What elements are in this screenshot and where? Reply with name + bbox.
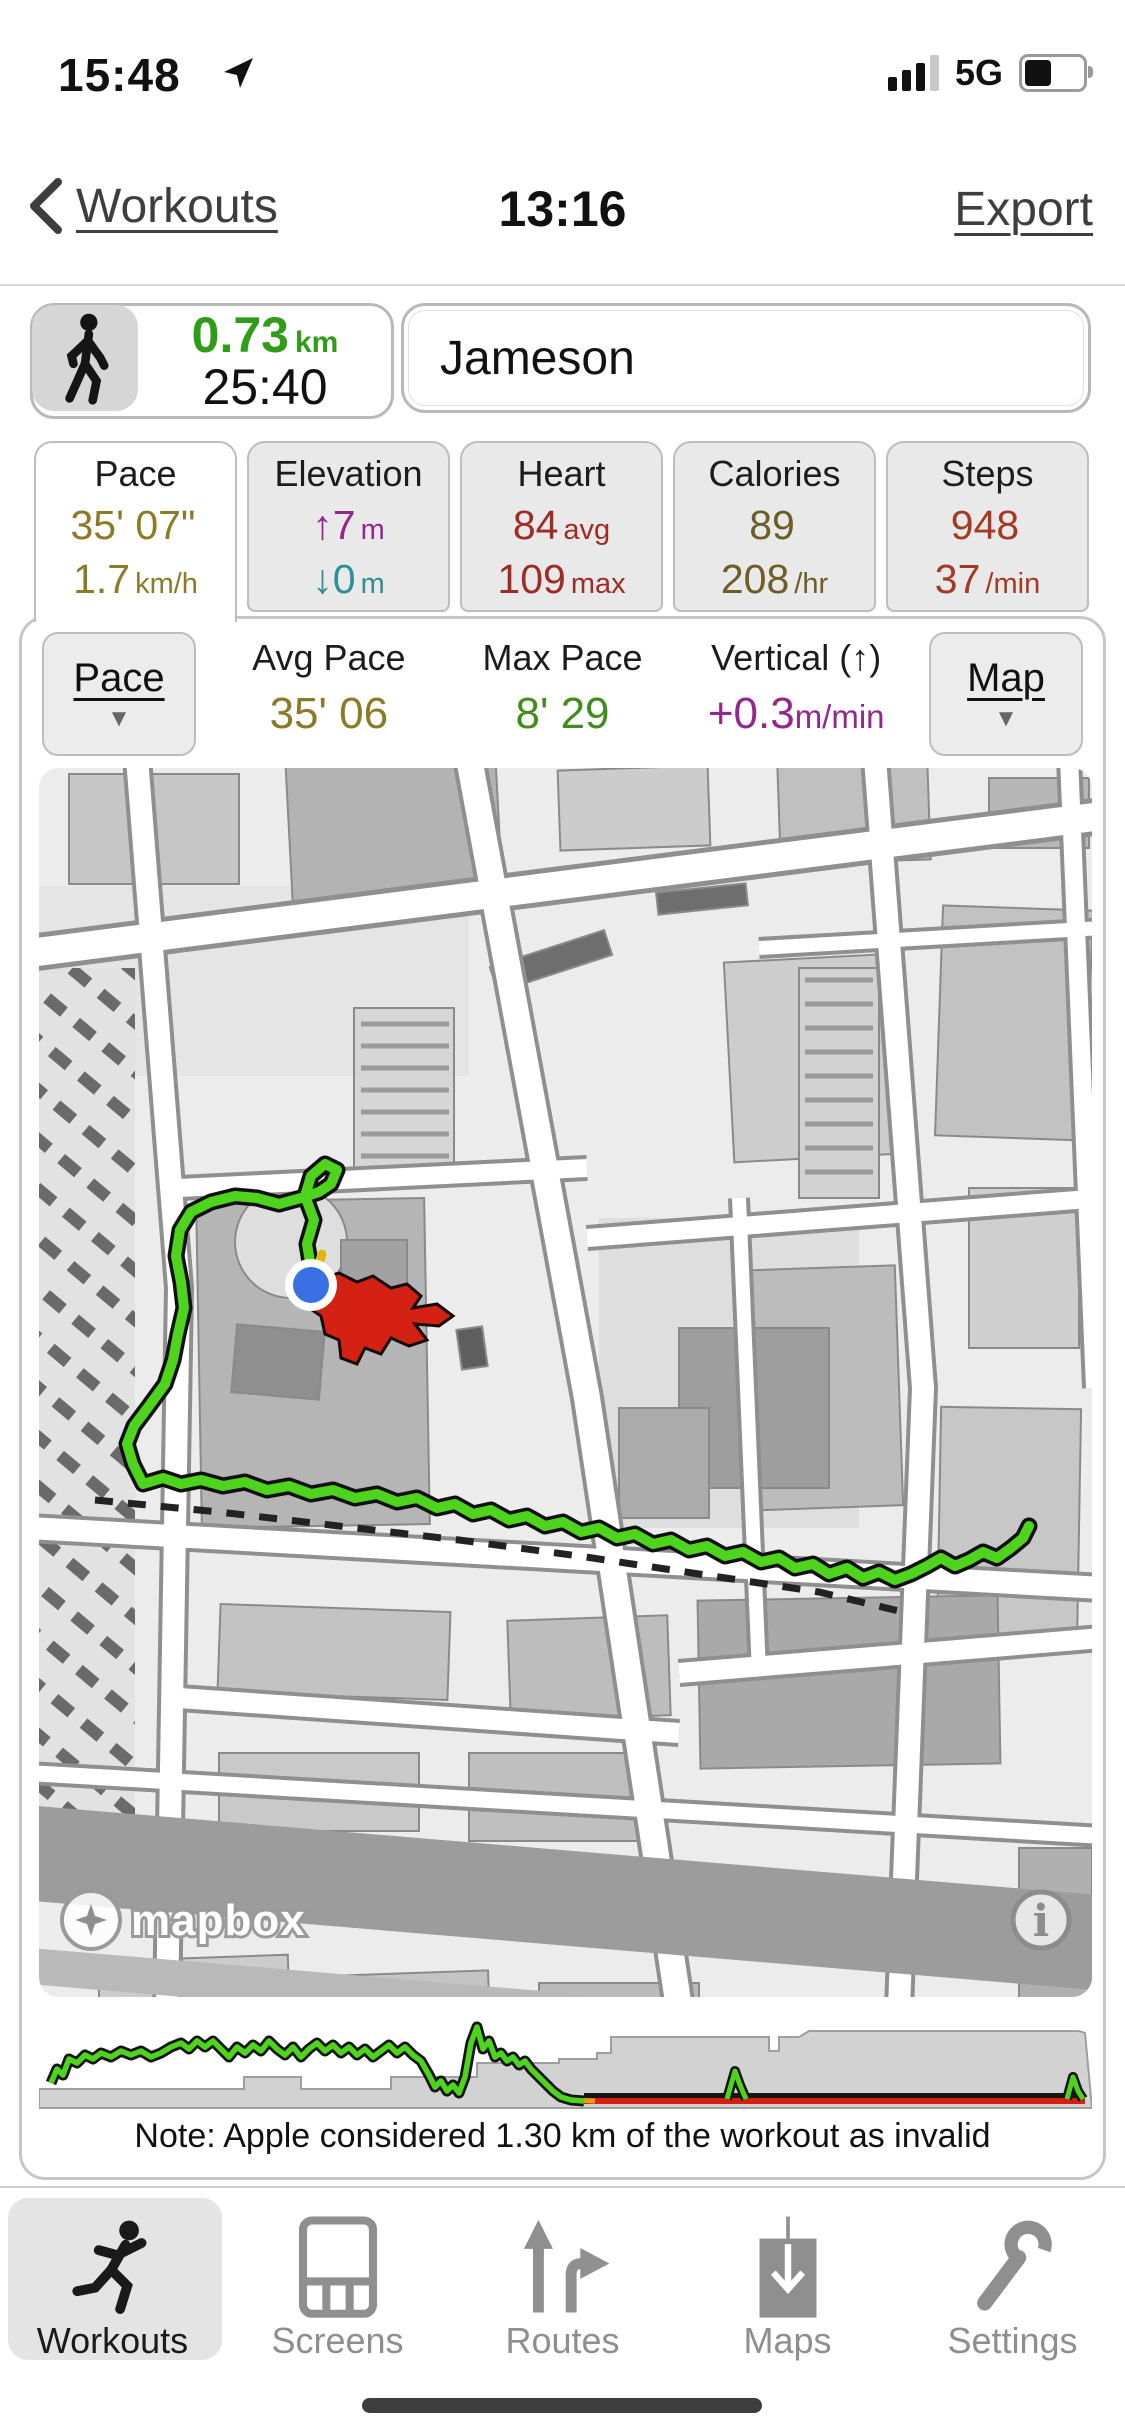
home-indicator[interactable] (362, 2398, 762, 2413)
network-type-label: 5G (955, 52, 1003, 94)
mapbox-logo: mapbox (62, 1891, 306, 1949)
current-location-dot (285, 1259, 337, 1311)
tab-calories[interactable]: Calories 89 208/hr (673, 441, 876, 612)
running-person-icon (0, 2212, 225, 2324)
metric-avg-pace: Avg Pace 35' 06 (212, 637, 446, 757)
app-screen: 15:48 5G Workouts 13:16 Export (0, 0, 1125, 2436)
tabbar-item-maps[interactable]: Maps (675, 2188, 900, 2368)
map-download-icon (675, 2212, 900, 2324)
screens-icon (225, 2212, 450, 2324)
tabbar-item-routes[interactable]: Routes (450, 2188, 675, 2368)
workout-summary-card[interactable]: 0.73km 25:40 (30, 303, 394, 419)
tabbar-item-settings[interactable]: Settings (900, 2188, 1125, 2368)
export-button[interactable]: Export (954, 182, 1093, 237)
metric-max-pace: Max Pace 8' 29 (446, 637, 680, 757)
chevron-down-icon: ▼ (107, 705, 131, 733)
activity-type-badge (32, 305, 138, 411)
route-map[interactable]: mapbox i (39, 768, 1092, 1997)
pace-profile-chart (39, 2013, 1092, 2109)
duration-value: 25:40 (202, 361, 327, 414)
tab-heart[interactable]: Heart 84avg 109max (460, 441, 663, 612)
nav-bar: Workouts 13:16 Export (0, 170, 1125, 282)
tab-pace[interactable]: Pace 35' 07" 1.7km/h (34, 441, 237, 622)
metric-dropdown-button[interactable]: Pace ▼ (42, 632, 196, 756)
tab-steps[interactable]: Steps 948 37/min (886, 441, 1089, 612)
svg-text:i: i (1033, 1896, 1050, 1947)
detail-panel: Pace ▼ Map ▼ Avg Pace 35' 06 Max Pace 8'… (19, 616, 1106, 2180)
svg-text:mapbox: mapbox (131, 1896, 306, 1945)
location-services-icon (222, 56, 256, 90)
wrench-icon (900, 2212, 1125, 2324)
stat-tabs: Pace 35' 07" 1.7km/h Elevation ↑7m ↓0m H… (0, 441, 1125, 621)
workout-name-field[interactable]: Jameson (401, 303, 1091, 413)
map-hatched-area (39, 968, 135, 1848)
distance-value: 0.73km (192, 309, 339, 362)
map-info-button[interactable]: i (1013, 1892, 1069, 1948)
battery-icon (1019, 54, 1087, 92)
tabbar-item-workouts[interactable]: Workouts (0, 2188, 225, 2368)
map-dropdown-button[interactable]: Map ▼ (929, 632, 1083, 756)
status-bar: 15:48 5G (0, 0, 1125, 120)
tabbar-item-screens[interactable]: Screens (225, 2188, 450, 2368)
chevron-down-icon: ▼ (994, 705, 1018, 733)
routes-icon (450, 2212, 675, 2324)
tab-elevation[interactable]: Elevation ↑7m ↓0m (247, 441, 450, 612)
status-time: 15:48 (58, 48, 181, 102)
walking-person-icon (35, 308, 135, 408)
nav-separator (0, 284, 1125, 286)
cellular-signal-icon (888, 55, 939, 91)
validity-note: Note: Apple considered 1.30 km of the wo… (22, 2117, 1103, 2156)
metric-vertical: Vertical (↑) +0.3m/min (679, 637, 913, 757)
